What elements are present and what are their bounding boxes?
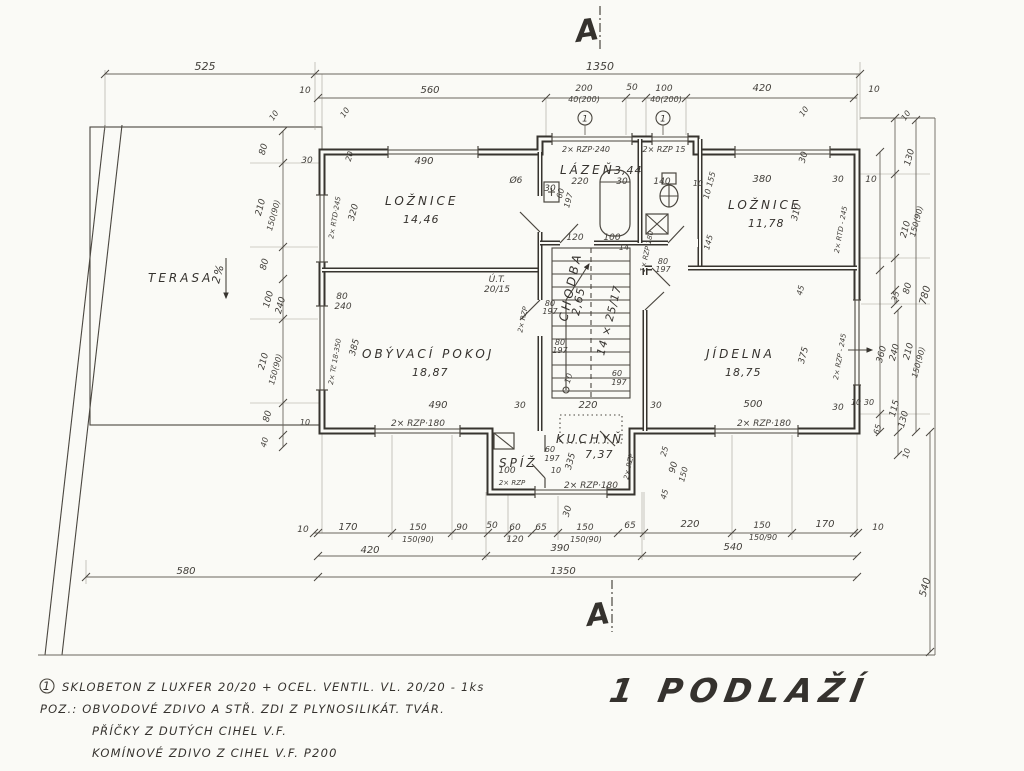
dim-label: 197 xyxy=(611,378,627,387)
dim-label: 20/15 xyxy=(484,285,510,295)
dim-label: 120 xyxy=(566,233,583,243)
room-area-kuchyn: 7,37 xyxy=(585,448,614,461)
room-labels: TERASA 2% LOŽNICE 14,46 LÁZEŇ 3,44 LOŽNI… xyxy=(148,162,801,470)
dim-label: 2× RZP·180 xyxy=(391,419,445,429)
dim-label: 80 xyxy=(262,409,275,423)
section-letter-bottom: A xyxy=(582,596,612,634)
door xyxy=(668,226,698,247)
floor-plan-drawing: 1 1 A A TERASA 2% LOŽNICE 14,46 LÁZEŇ 3,… xyxy=(0,0,1024,771)
dim-label: 10 xyxy=(267,109,280,123)
dim-label: 150 xyxy=(677,466,690,483)
dim-label: 197 xyxy=(542,307,558,316)
dim-label: 2× Tč 18-350 xyxy=(327,337,343,385)
dim-label: 500 xyxy=(743,399,762,410)
room-name-kuchyn: KUCHYŇ xyxy=(556,431,624,446)
dim-label: 60 xyxy=(612,369,622,378)
dim-label: 10 xyxy=(797,105,810,119)
note-mark: 1 xyxy=(660,115,666,125)
dim-label: 240 xyxy=(334,302,351,312)
dim-label: 140 xyxy=(653,177,670,187)
window xyxy=(652,133,688,145)
dim-label: 240 xyxy=(274,296,288,315)
dim-label: 10 xyxy=(868,85,880,95)
dim-label: 150(90) xyxy=(570,535,602,544)
kitchen-counter xyxy=(494,433,514,449)
dim-label: 10 xyxy=(872,523,884,533)
dim-label: 25 xyxy=(659,445,670,457)
dim-label: 540 xyxy=(723,542,742,553)
dim-label: 10 xyxy=(338,106,351,120)
dim-label: 130 xyxy=(903,148,917,167)
door xyxy=(641,275,664,310)
dim-label: 30 xyxy=(562,504,575,518)
dim-label: 150 xyxy=(576,523,593,533)
dim-label: 120 xyxy=(506,535,523,545)
dim-label: 80 xyxy=(258,142,271,156)
dim-label: 100 xyxy=(498,466,515,476)
dim-label: 80 xyxy=(902,281,915,295)
window xyxy=(316,306,328,390)
dim-label: 30 xyxy=(544,184,556,194)
dim-label: 2× RZP·180 xyxy=(564,481,618,491)
dim-label: 197 xyxy=(552,346,568,355)
room-area-loznice-right: 11,78 xyxy=(748,217,785,230)
dim-label: 150 xyxy=(409,523,426,533)
dim-label: 60 xyxy=(509,523,521,533)
dim-label: 150(90) xyxy=(402,535,434,544)
dim-label: 420 xyxy=(752,83,771,94)
dim-label: 40(200) xyxy=(650,95,682,104)
dim-label: 360 xyxy=(875,345,889,364)
floor-plan-page: 1 1 A A TERASA 2% LOŽNICE 14,46 LÁZEŇ 3,… xyxy=(0,0,1024,771)
note-line-2: POZ.: OBVODOVÉ ZDIVO A STŘ. ZDI Z PLYNOS… xyxy=(40,701,445,716)
dim-label: 2× RTD - 245 xyxy=(833,205,849,254)
dim-label: 50 xyxy=(486,521,498,531)
window xyxy=(316,195,328,262)
room-name-lazen: LÁZEŇ xyxy=(560,162,615,177)
dim-label: 10 xyxy=(693,179,703,188)
dim-label: 10 xyxy=(865,175,877,185)
dim-label: 200 xyxy=(575,84,592,94)
note-line-4: KOMÍNOVÉ ZDIVO Z CIHEL V.F. P200 xyxy=(92,745,338,760)
dim-label: 145 xyxy=(702,234,715,251)
dim-label: 1350 xyxy=(586,60,614,73)
note-line-3: PŘÍČKY Z DUTÝCH CIHEL V.F. xyxy=(92,723,287,738)
dim-label: 210 xyxy=(254,198,268,217)
dim-label: 2× RZP·180 xyxy=(737,419,791,429)
dim-label: 10 xyxy=(851,398,861,407)
section-mark-bottom: A xyxy=(582,580,612,634)
dim-label: 45 xyxy=(659,488,670,500)
dim-label: 197 xyxy=(544,454,560,463)
dim-label: 10 xyxy=(297,525,309,535)
dim-label: 10 xyxy=(551,466,561,475)
dim-label: 240 xyxy=(888,343,902,362)
stairs-label: 14 × 25/17 xyxy=(594,284,624,357)
note-marks: 1 1 xyxy=(578,111,670,125)
dim-label: Ú.T. xyxy=(489,273,506,285)
dim-label: 220 xyxy=(578,400,597,411)
note-mark: 1 xyxy=(582,115,588,125)
window xyxy=(735,146,830,158)
window xyxy=(552,133,632,145)
dim-label: 10 xyxy=(300,418,310,427)
dim-label: 60 xyxy=(545,445,555,454)
dim-label: 10 xyxy=(899,109,912,123)
dim-label: 1350 xyxy=(550,566,575,577)
dim-label: 100 xyxy=(262,290,276,309)
dim-label: Ø6 xyxy=(509,175,523,186)
dim-label: 14 xyxy=(619,243,629,252)
dim-label: 100 xyxy=(603,233,620,243)
note-line-1: SKLOBETON Z LUXFER 20/20 + OCEL. VENTIL.… xyxy=(62,680,485,694)
dim-label: 30 xyxy=(514,401,526,411)
dim-label: 2× RZP·240 xyxy=(562,145,610,154)
dim-label: 385 xyxy=(348,338,362,357)
dim-label: 30 xyxy=(832,403,844,413)
dim-label: 220 xyxy=(571,177,588,187)
dim-label: 580 xyxy=(176,566,195,577)
dim-label: 65 xyxy=(624,521,636,531)
window xyxy=(853,300,861,385)
dim-label: 320 xyxy=(347,203,361,222)
dim-label: 45 xyxy=(795,284,806,296)
extension-lines xyxy=(86,62,930,584)
room-name-terasa: TERASA xyxy=(148,271,213,285)
dim-label: 170 xyxy=(815,519,834,530)
dim-label: 150(90) xyxy=(908,205,925,238)
note-mark: 1 xyxy=(43,679,52,693)
dim-label: 150(90) xyxy=(265,199,282,232)
room-name-loznice-left: LOŽNICE xyxy=(385,193,458,208)
dim-label: 100 xyxy=(655,84,672,94)
section-letter-top: A xyxy=(571,12,601,50)
dim-label: 490 xyxy=(414,156,433,167)
dim-label: 150 xyxy=(753,521,770,531)
dim-label: 65 xyxy=(872,423,883,435)
dim-label: 30 xyxy=(864,398,874,407)
room-name-loznice-right: LOŽNICE xyxy=(728,197,801,212)
dim-label: 525 xyxy=(195,60,216,73)
dim-label: 540 xyxy=(918,577,934,598)
room-name-jidelna: JÍDELNA xyxy=(704,346,775,361)
section-mark-top: A xyxy=(571,6,601,52)
room-area-loznice-left: 14,46 xyxy=(403,213,440,226)
dim-label: 40 xyxy=(259,436,270,448)
room-area-obyvaci: 18,87 xyxy=(412,366,449,379)
dim-label: 80 xyxy=(336,292,348,302)
terrace-slope: 2% xyxy=(209,263,227,285)
room-area-jidelna: 18,75 xyxy=(725,366,762,379)
room-name-obyvaci: OBÝVACÍ POKOJ xyxy=(362,346,494,361)
dim-label: 335 xyxy=(564,452,578,471)
room-area-lazen: 3,44 xyxy=(614,164,643,177)
dim-label: 30 xyxy=(832,175,844,185)
dim-label: 10 xyxy=(901,447,912,459)
notes-block: 1 SKLOBETON Z LUXFER 20/20 + OCEL. VENTI… xyxy=(40,679,485,760)
dim-label: 30 xyxy=(616,177,628,187)
dim-label: 390 xyxy=(550,543,569,554)
dim-label: 197 xyxy=(655,265,671,274)
dim-label: 30 xyxy=(650,401,662,411)
dim-label: 220 xyxy=(680,519,699,530)
dim-label: 490 xyxy=(428,400,447,411)
drawing-title: 1 PODLAŽÍ xyxy=(607,670,874,710)
dim-label: 2× RZP xyxy=(499,479,526,487)
dim-label: 30 xyxy=(301,156,313,166)
door xyxy=(520,196,544,232)
dim-label: 80 xyxy=(259,257,272,271)
dim-label: 65 xyxy=(535,523,547,533)
dim-label: 210 xyxy=(257,352,271,371)
dim-label: 40(200) xyxy=(568,95,600,104)
dim-label: 420 xyxy=(360,545,379,556)
dim-label: 2× RZP - 245 xyxy=(832,332,848,380)
dim-label: 780 xyxy=(918,285,934,306)
dim-label: 2× RZP xyxy=(516,305,529,333)
dim-label: 2× RZP 15 xyxy=(643,145,686,154)
dim-label: 380 xyxy=(752,174,771,185)
dim-label: 35 xyxy=(890,290,901,302)
dim-label: 170 xyxy=(338,522,357,533)
dim-label: 10 155 xyxy=(702,171,718,200)
dim-label: 560 xyxy=(420,85,439,96)
dim-label: 150/90 xyxy=(749,533,777,542)
dim-label: 10 xyxy=(563,372,574,384)
dim-label: 2× RTD·245 xyxy=(327,195,342,239)
dim-label: 10 xyxy=(299,86,311,96)
dim-label: 50 xyxy=(626,83,638,93)
dim-label: 375 xyxy=(797,346,811,365)
dim-label: 90 xyxy=(456,523,468,533)
